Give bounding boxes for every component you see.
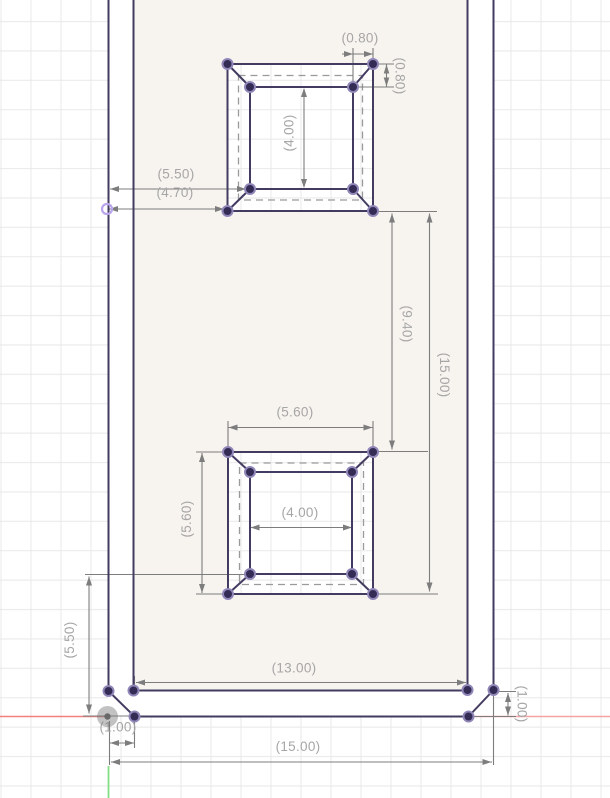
dimension-label[interactable]: (5.50) bbox=[157, 167, 194, 182]
dimension-label[interactable]: (5.60) bbox=[179, 500, 194, 537]
origin-marker[interactable] bbox=[97, 706, 118, 727]
sketch-point[interactable] bbox=[347, 467, 357, 477]
sketch-point[interactable] bbox=[104, 686, 114, 696]
sketch-point[interactable] bbox=[368, 206, 378, 216]
dimension-label[interactable]: (4.00) bbox=[282, 114, 297, 151]
dimension-label[interactable]: (5.50) bbox=[62, 621, 77, 658]
sketch-point[interactable] bbox=[223, 589, 233, 599]
sketch-point[interactable] bbox=[489, 685, 499, 695]
sketch-point[interactable] bbox=[129, 686, 139, 696]
dimension-label[interactable]: (4.00) bbox=[281, 505, 318, 520]
sketch-point[interactable] bbox=[223, 59, 233, 69]
sketch-point[interactable] bbox=[348, 82, 358, 92]
sketch-point[interactable] bbox=[464, 712, 474, 722]
sketch-point[interactable] bbox=[368, 589, 378, 599]
sketch-point[interactable] bbox=[347, 569, 357, 579]
sketch-point[interactable] bbox=[223, 206, 233, 216]
sketch-point[interactable] bbox=[368, 59, 378, 69]
sketch-point[interactable] bbox=[463, 685, 473, 695]
dimension-label[interactable]: (4.70) bbox=[156, 185, 193, 200]
dimension-label[interactable]: (0.80) bbox=[392, 57, 407, 94]
dimension-label[interactable]: (5.60) bbox=[276, 405, 313, 420]
dimension-label[interactable]: (15.00) bbox=[276, 739, 321, 754]
sketch-point[interactable] bbox=[348, 184, 358, 194]
sketch-point[interactable] bbox=[130, 712, 140, 722]
sketch-point[interactable] bbox=[245, 184, 255, 194]
dimension-label[interactable]: (1.00) bbox=[514, 685, 529, 722]
sketch-point[interactable] bbox=[245, 467, 255, 477]
sketch-point[interactable] bbox=[223, 447, 233, 457]
sketch-point[interactable] bbox=[245, 569, 255, 579]
sketch-canvas: (0.80) (0.80) (4.00) (5.50) (4.70) (9.40… bbox=[0, 0, 610, 798]
origin-point[interactable] bbox=[104, 713, 110, 719]
sketch-point[interactable] bbox=[368, 447, 378, 457]
sketch-point[interactable] bbox=[245, 82, 255, 92]
dimension-label[interactable]: (0.80) bbox=[341, 31, 378, 46]
dimension-label[interactable]: (9.40) bbox=[399, 305, 414, 342]
dimension-label[interactable]: (13.00) bbox=[272, 661, 317, 676]
dimension-label[interactable]: (15.00) bbox=[437, 353, 452, 398]
